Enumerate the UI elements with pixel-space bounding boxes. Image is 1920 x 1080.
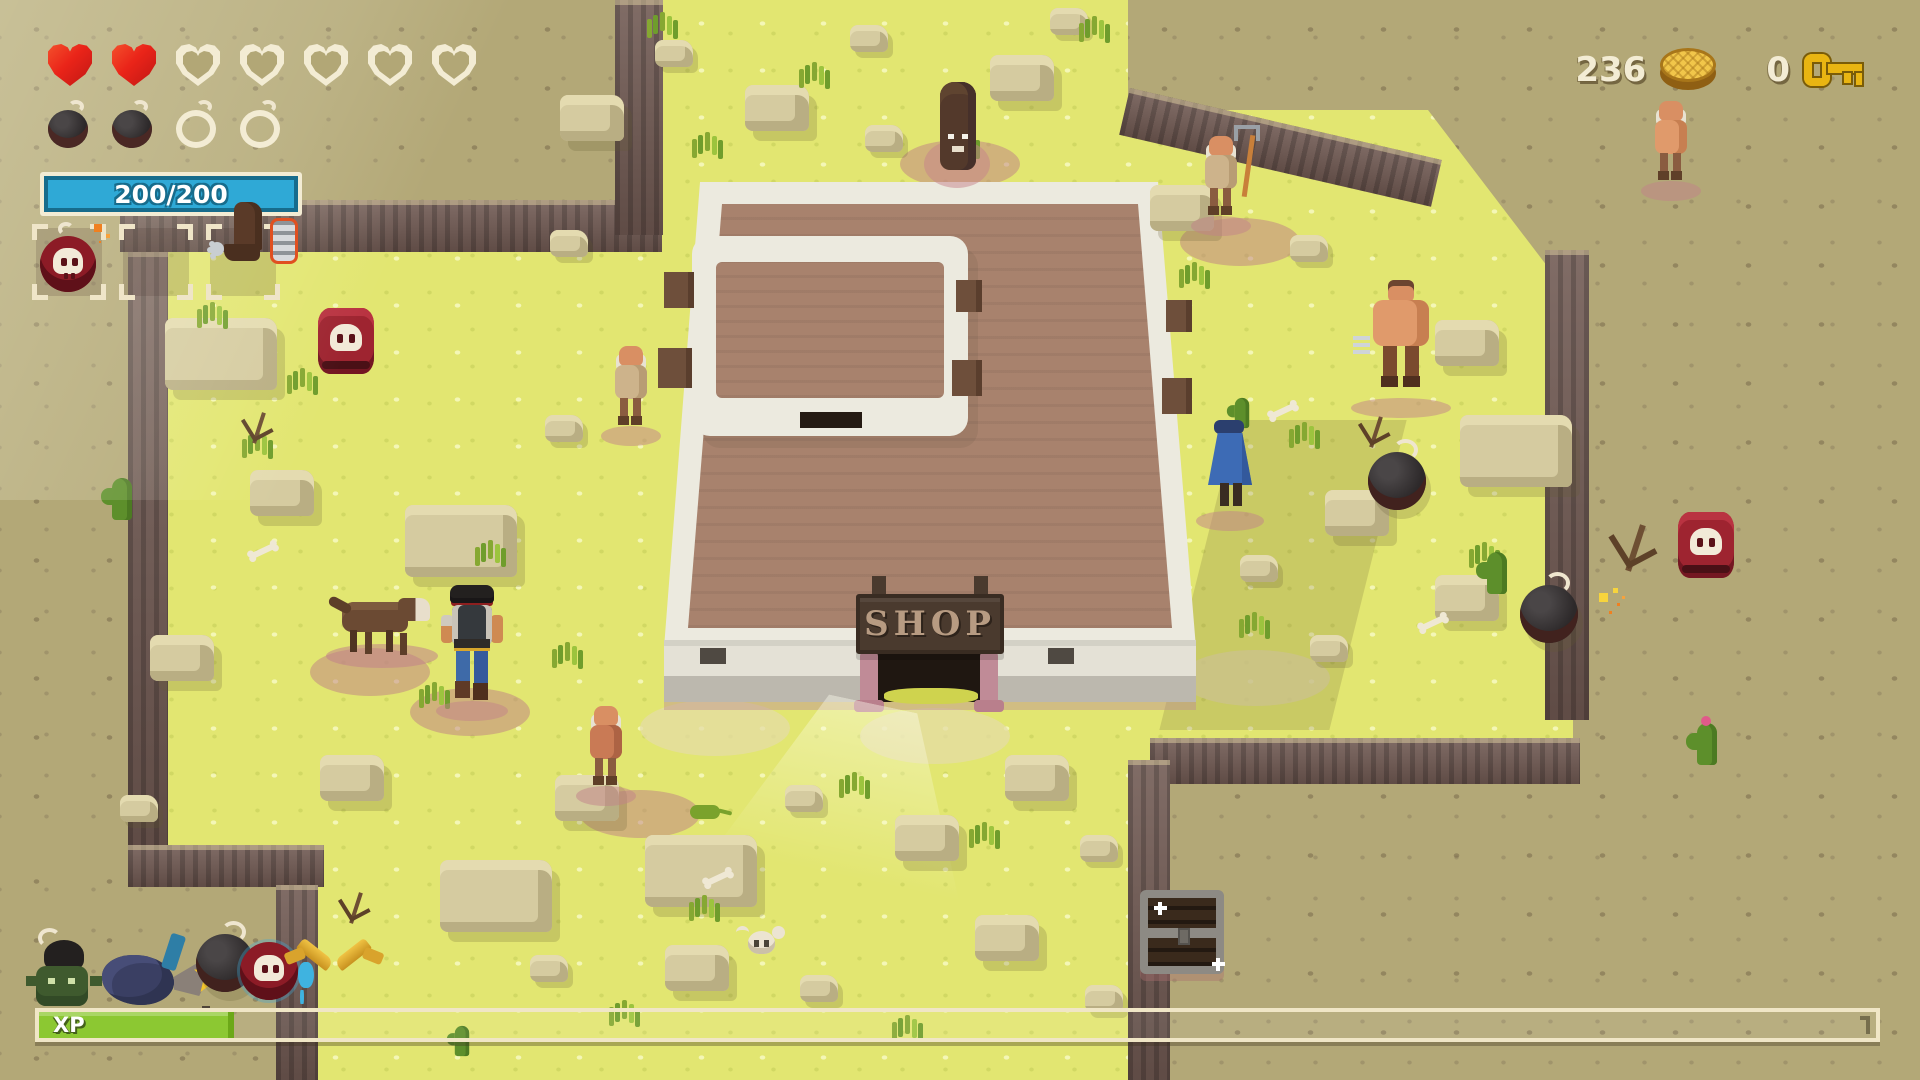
rock-sm-sprite bbox=[1310, 635, 1348, 662]
grass-tuft-sprite bbox=[705, 132, 710, 151]
brute-with-claws[interactable] bbox=[1355, 280, 1447, 412]
cliff-edge bbox=[128, 252, 168, 852]
wall-socket bbox=[1048, 648, 1074, 664]
villager-shirtless[interactable] bbox=[1645, 95, 1697, 195]
cactus-sprite bbox=[112, 478, 132, 520]
slot-empty[interactable] bbox=[123, 228, 189, 296]
rock-lg-sprite bbox=[1460, 415, 1572, 487]
wall-socket bbox=[700, 648, 726, 664]
shop-sign[interactable]: SHOP bbox=[856, 594, 1004, 654]
lizard bbox=[690, 805, 720, 819]
slot-boot-spur[interactable] bbox=[210, 228, 276, 296]
rock-sm-sprite bbox=[865, 125, 903, 152]
wall-beam bbox=[1166, 300, 1192, 332]
grass-tuft-sprite bbox=[300, 368, 305, 387]
sand-sprite bbox=[640, 700, 790, 756]
caped-villager[interactable] bbox=[1200, 420, 1260, 525]
rock-sm-sprite bbox=[530, 955, 568, 982]
coin-icon bbox=[1660, 48, 1716, 92]
grass-tuft-sprite bbox=[210, 302, 215, 321]
wolf-side[interactable] bbox=[330, 588, 434, 660]
wall-beam bbox=[1162, 378, 1192, 414]
heart-icon-empty bbox=[176, 44, 220, 86]
bomb-icon-filled bbox=[48, 104, 90, 146]
rock-sprite bbox=[150, 635, 214, 681]
rock-sm-sprite bbox=[545, 415, 583, 442]
xp-bar-label: XP bbox=[53, 1013, 85, 1037]
heart-icon-empty bbox=[368, 44, 412, 86]
rock-sm-sprite bbox=[785, 785, 823, 812]
heart-icon-filled bbox=[48, 44, 92, 86]
item-slots-row bbox=[36, 228, 296, 298]
cactus-sprite bbox=[1487, 552, 1507, 594]
hearts-row bbox=[48, 44, 496, 86]
heart-icon-filled bbox=[112, 44, 156, 86]
rock-sprite bbox=[745, 85, 809, 131]
deadbush-sprite bbox=[332, 888, 382, 928]
rock-sm-sprite bbox=[800, 975, 838, 1002]
xp-bar-endcap bbox=[1860, 1016, 1870, 1034]
grass-tuft-sprite bbox=[1092, 16, 1097, 35]
health-bar-label: 200/200 bbox=[114, 180, 228, 209]
coin-count: 236 bbox=[1575, 50, 1646, 90]
rock-sprite bbox=[665, 945, 729, 991]
loot-goblin-bombhat[interactable] bbox=[28, 942, 102, 1012]
grass-tuft-sprite bbox=[852, 772, 857, 791]
rock-sm-sprite bbox=[1080, 835, 1118, 862]
loot-golden-pistols[interactable] bbox=[292, 938, 376, 1000]
rock-sm-sprite bbox=[550, 230, 588, 257]
deadbush-sprite bbox=[235, 408, 285, 448]
slot-skull-bomb[interactable] bbox=[36, 228, 102, 296]
cliff-edge bbox=[128, 845, 324, 887]
rock-sprite bbox=[320, 755, 384, 801]
grass-tuft-sprite bbox=[565, 642, 570, 661]
world-bomb[interactable] bbox=[1368, 452, 1426, 510]
skull-barrel[interactable] bbox=[1678, 512, 1734, 578]
cactus-flower-sprite bbox=[1697, 723, 1717, 765]
rock-sprite bbox=[895, 815, 959, 861]
heart-icon-empty bbox=[432, 44, 476, 86]
xp-bar: XP bbox=[35, 1008, 1880, 1042]
rock-sprite bbox=[990, 55, 1054, 101]
grass-tuft-sprite bbox=[660, 12, 665, 31]
bomb-icon-filled bbox=[112, 104, 154, 146]
rock-lg-sprite bbox=[645, 835, 757, 907]
heart-icon-empty bbox=[240, 44, 284, 86]
rock-sm-sprite bbox=[850, 25, 888, 52]
grass-tuft-sprite bbox=[488, 540, 493, 559]
wall-beam bbox=[956, 280, 982, 312]
cliff-edge bbox=[1150, 738, 1580, 784]
skull-bomb-icon bbox=[40, 236, 96, 292]
rock-sm-sprite bbox=[1050, 8, 1088, 35]
grass-tuft-sprite bbox=[812, 62, 817, 81]
boot-spur-icon bbox=[226, 202, 266, 268]
grass-tuft-sprite bbox=[1302, 422, 1307, 441]
heart-icon-empty bbox=[304, 44, 348, 86]
currency-counters: 236 0 bbox=[1575, 48, 1864, 92]
player-character[interactable] bbox=[440, 585, 504, 715]
bomb-icon-empty bbox=[240, 104, 282, 146]
bombs-row bbox=[48, 104, 304, 146]
rock-sprite bbox=[560, 95, 624, 141]
wall-beam bbox=[658, 348, 692, 388]
rock-sm-sprite bbox=[1240, 555, 1278, 582]
rock-sm-sprite bbox=[655, 40, 693, 67]
rock-lg-sprite bbox=[165, 318, 277, 390]
grass-tuft-sprite bbox=[702, 895, 707, 914]
rock-sprite bbox=[250, 470, 314, 516]
grass-tuft-sprite bbox=[1192, 262, 1197, 281]
key-count: 0 bbox=[1766, 50, 1790, 90]
key-icon bbox=[1804, 52, 1864, 88]
roof-tower bbox=[692, 236, 968, 436]
tower-door bbox=[800, 412, 862, 428]
rock-sm-sprite bbox=[1290, 235, 1328, 262]
villager-oldman[interactable] bbox=[580, 700, 632, 800]
rock-sprite bbox=[975, 915, 1039, 961]
door-frame bbox=[860, 652, 878, 708]
skull-barrel[interactable] bbox=[318, 308, 374, 374]
wall-beam bbox=[664, 272, 694, 308]
grass-tuft-sprite bbox=[982, 822, 987, 841]
bomb-icon-empty bbox=[176, 104, 218, 146]
shop-sign-text: SHOP bbox=[864, 604, 996, 644]
wolf-front[interactable] bbox=[930, 82, 986, 194]
rock-lg-sprite bbox=[405, 505, 517, 577]
ground-skull bbox=[738, 922, 784, 962]
rock-lg-sprite bbox=[440, 860, 552, 932]
door-grass-patch bbox=[884, 688, 978, 704]
game-screen: SHOP 200/200 236 0 XP bbox=[0, 0, 1920, 1080]
rock-sm-sprite bbox=[120, 795, 158, 822]
rock-sprite bbox=[1005, 755, 1069, 801]
grass-tuft-sprite bbox=[1482, 542, 1487, 561]
wall-beam bbox=[952, 360, 982, 396]
grass-tuft-sprite bbox=[432, 682, 437, 701]
villager-oldman[interactable] bbox=[605, 340, 657, 440]
deadbush-lg-sprite bbox=[1600, 518, 1675, 578]
door-frame bbox=[980, 652, 998, 708]
tower-roof bbox=[716, 262, 944, 398]
treasure-chest[interactable] bbox=[1140, 890, 1224, 974]
world-bomb-lit[interactable] bbox=[1520, 585, 1578, 643]
farmer-with-pitchfork[interactable] bbox=[1195, 130, 1247, 230]
grass-tuft-sprite bbox=[1252, 612, 1257, 631]
